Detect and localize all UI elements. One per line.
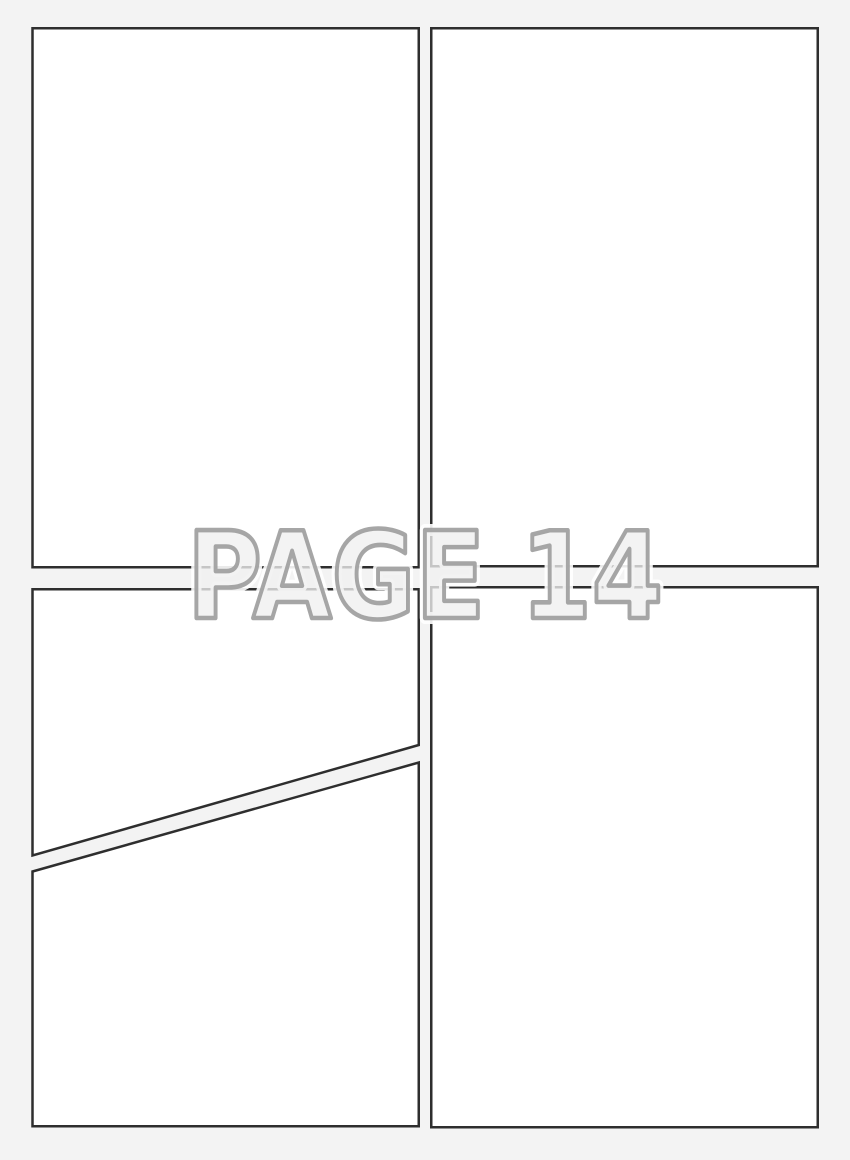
page-canvas: PAGE 14 PAGE 14 [0,0,850,1160]
panel-top-right [431,28,818,566]
comic-page-template: PAGE 14 PAGE 14 [0,0,850,1160]
watermark-text: PAGE 14 [187,508,663,647]
page-number-watermark: PAGE 14 PAGE 14 [187,508,663,647]
panel-bottom-right [431,587,818,1127]
panel-top-left [33,28,419,567]
